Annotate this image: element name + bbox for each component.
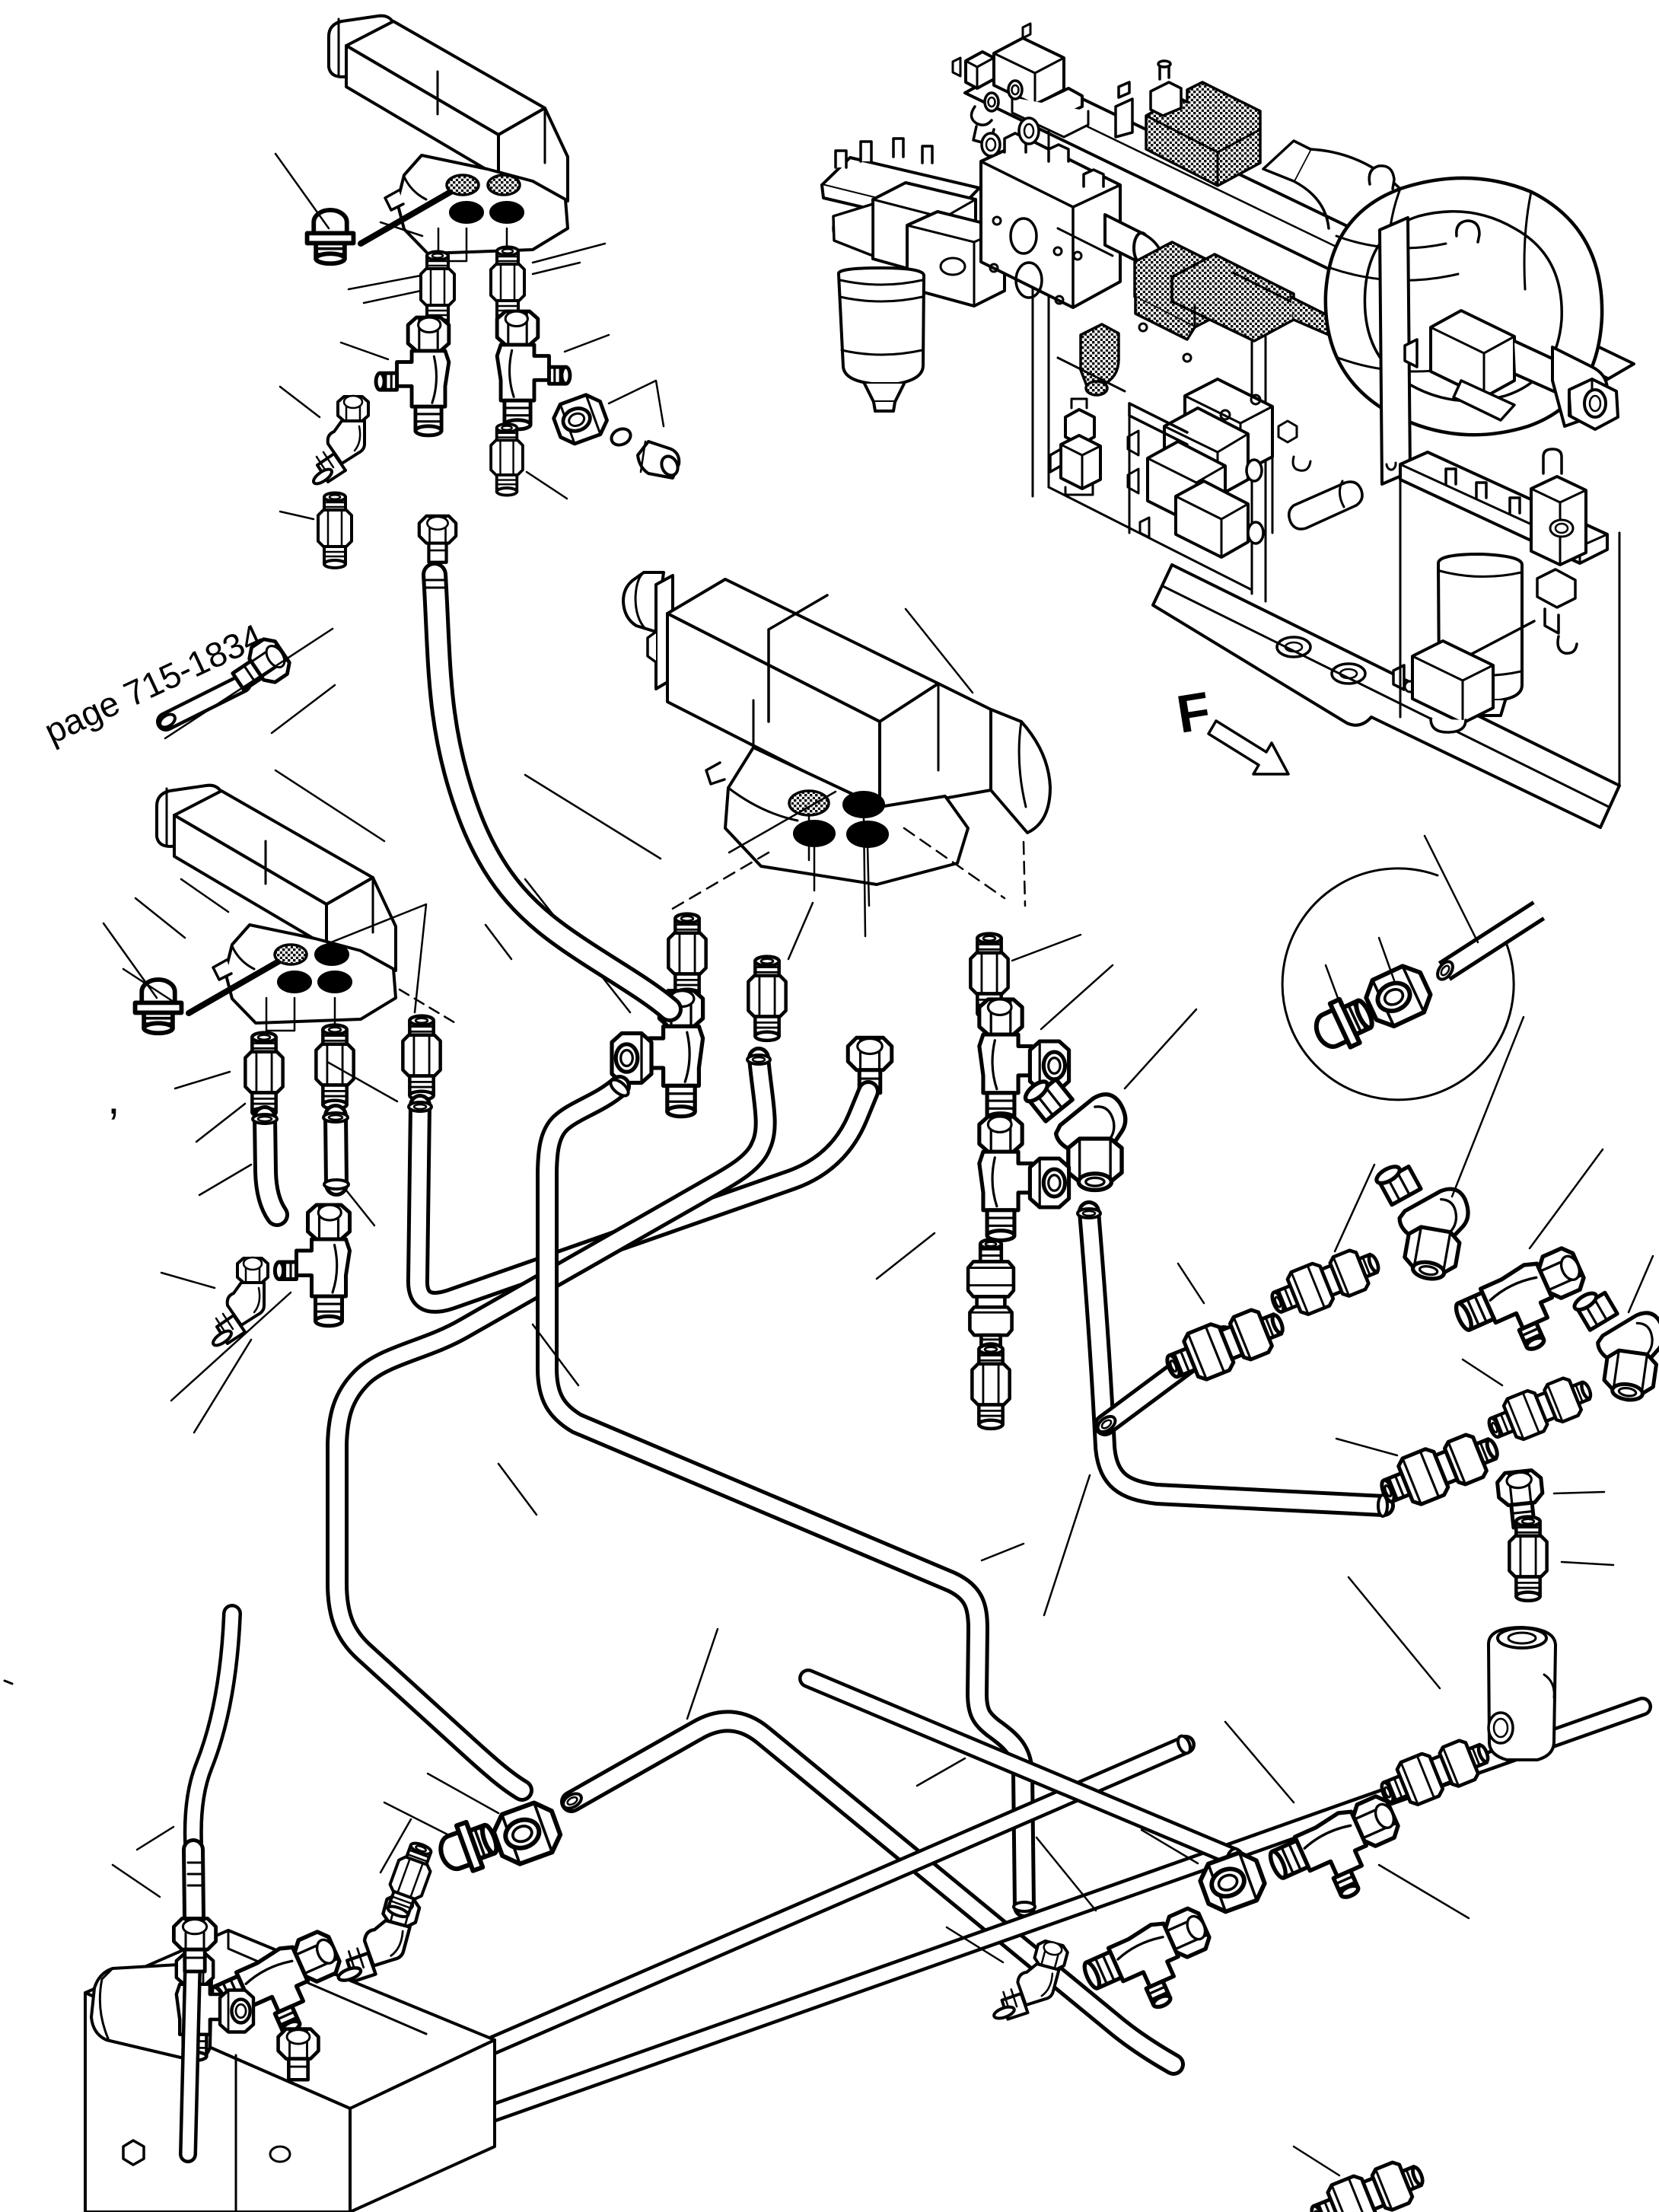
svg-text:,: , [107, 1073, 120, 1124]
